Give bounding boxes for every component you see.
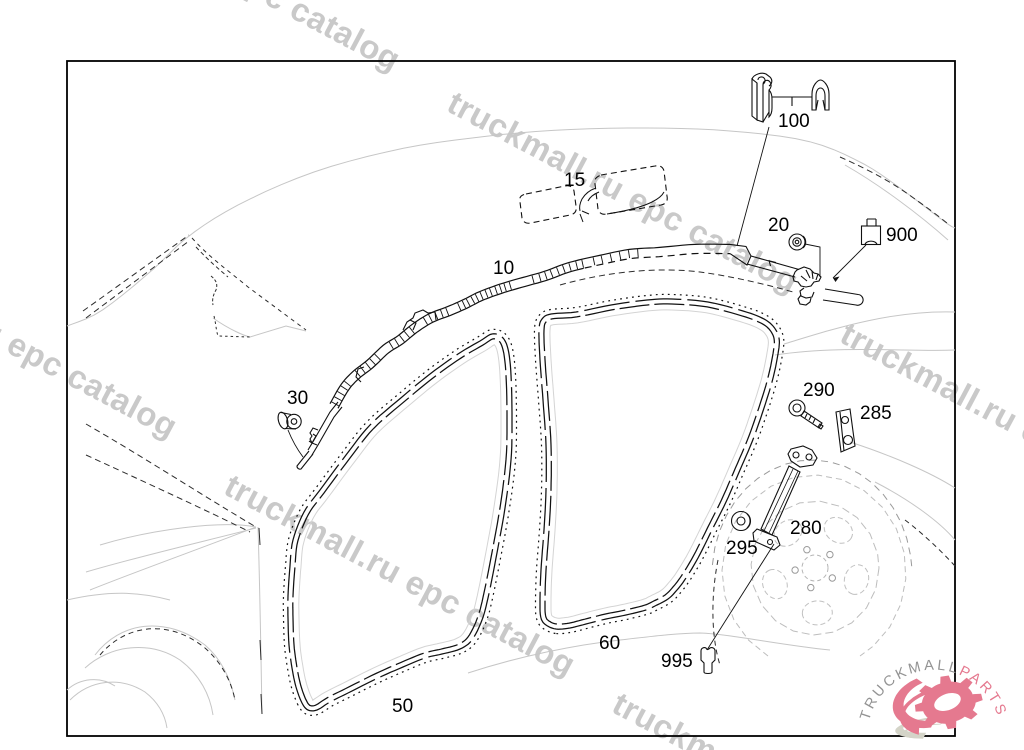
svg-text:290: 290: [803, 380, 835, 401]
svg-text:280: 280: [790, 518, 822, 539]
svg-text:295: 295: [726, 538, 758, 559]
svg-text:30: 30: [287, 388, 308, 409]
svg-text:995: 995: [661, 651, 693, 672]
svg-text:900: 900: [886, 225, 918, 246]
svg-text:15: 15: [564, 170, 585, 191]
svg-text:285: 285: [860, 403, 892, 424]
svg-text:60: 60: [599, 633, 620, 654]
svg-text:50: 50: [392, 696, 413, 717]
svg-text:20: 20: [768, 215, 789, 236]
svg-text:10: 10: [493, 258, 514, 279]
svg-text:100: 100: [778, 111, 810, 132]
